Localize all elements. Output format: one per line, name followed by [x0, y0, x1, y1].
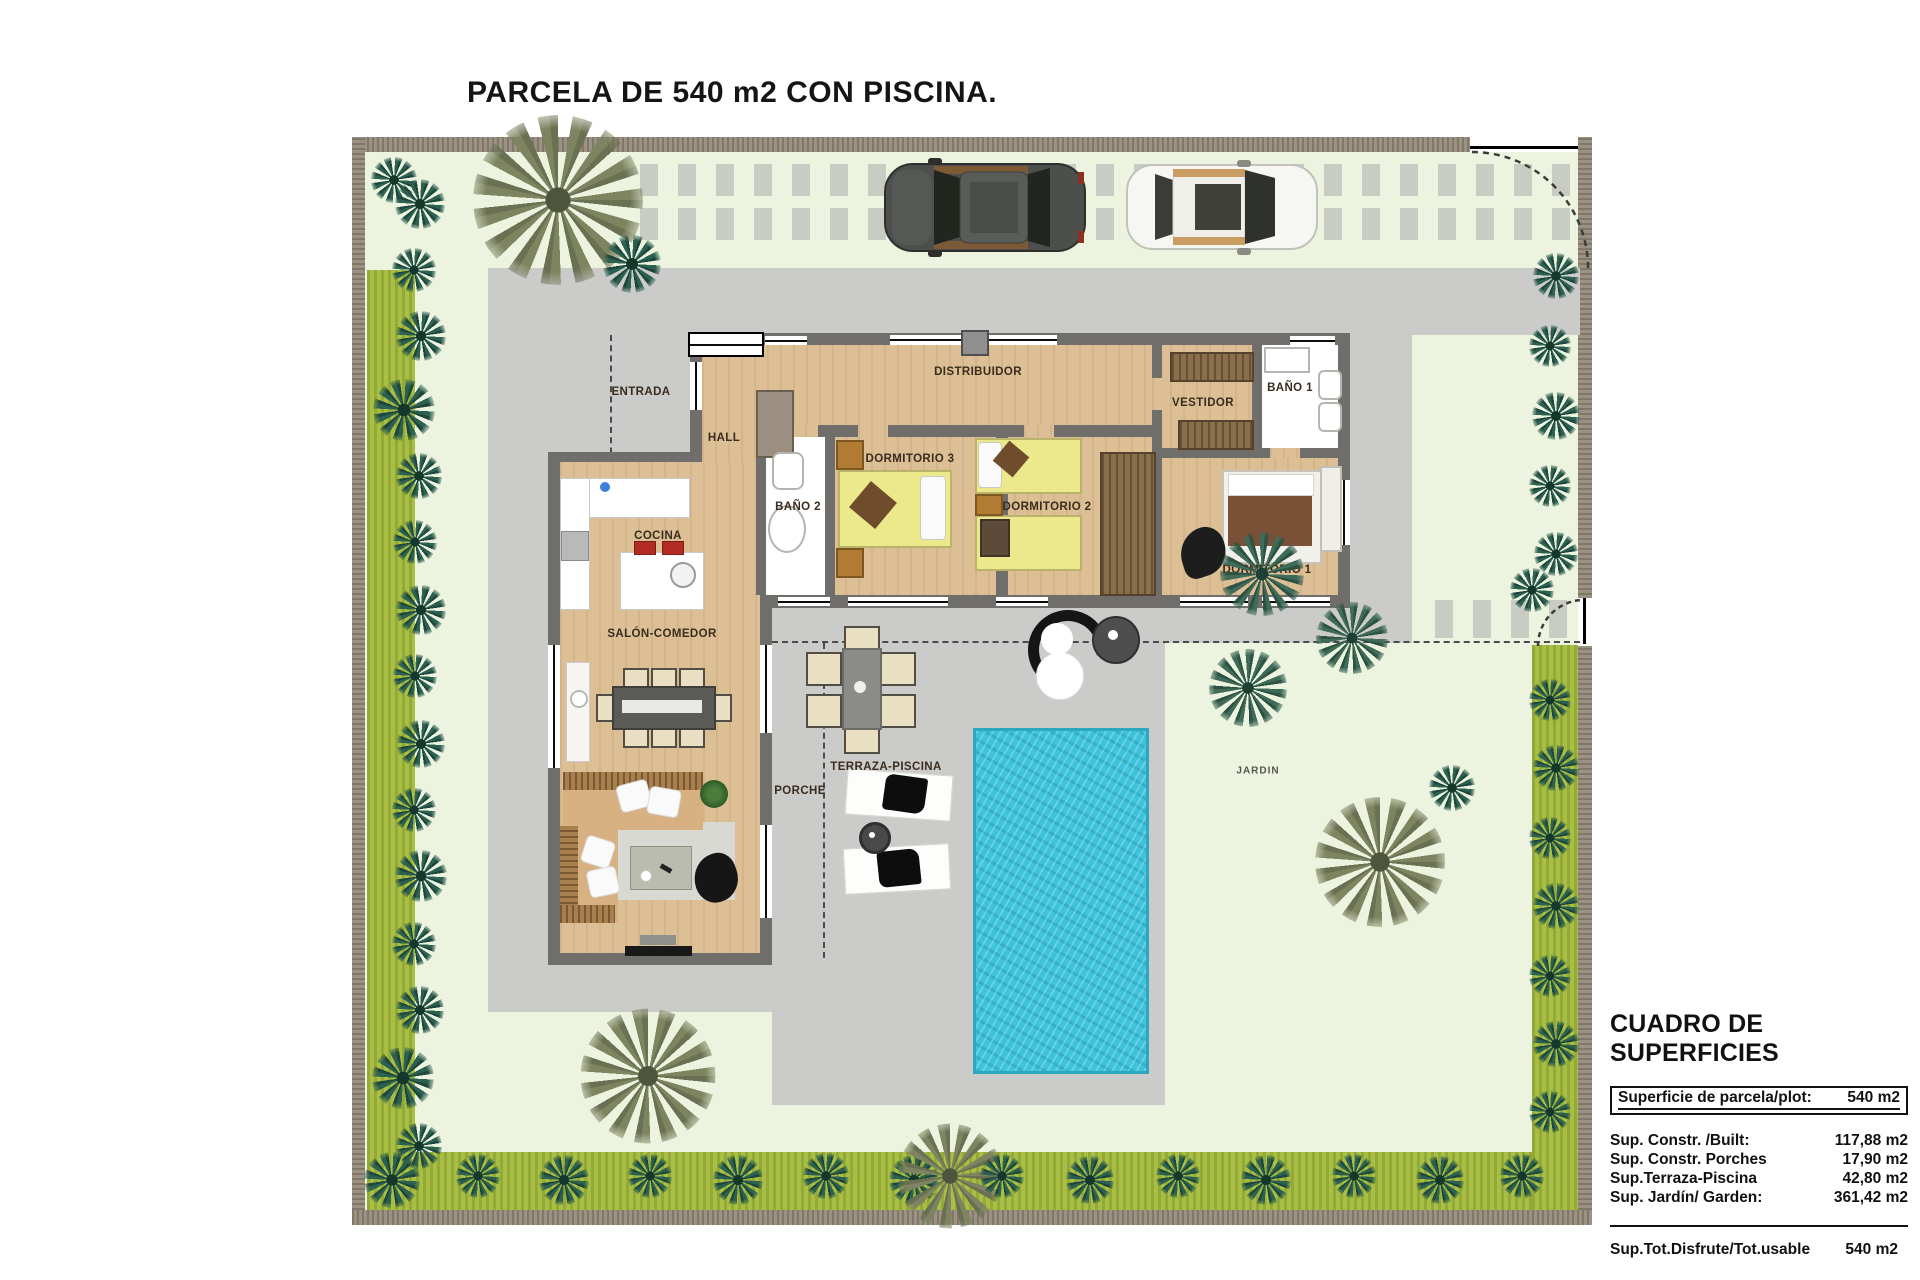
surface-row-value: 361,42 m2	[1834, 1188, 1908, 1207]
bush-icon	[1529, 679, 1571, 721]
room-label-vestidor: VESTIDOR	[1172, 397, 1234, 409]
room-label-dormitorio2: DORMITORIO 2	[1003, 501, 1092, 513]
bush-icon	[396, 453, 442, 499]
bush-icon	[980, 1154, 1024, 1198]
plot-surface-label: Superficie de parcela/plot:	[1618, 1089, 1812, 1107]
room-label-salon-comedor: SALÓN-COMEDOR	[607, 628, 716, 640]
bush-icon	[1156, 1154, 1200, 1198]
bush-icon	[1529, 325, 1571, 367]
bush-icon	[539, 1155, 589, 1205]
surface-row: Sup. Constr. Porches 17,90 m2	[1610, 1150, 1908, 1169]
bush-icon	[373, 379, 435, 441]
bush-icon	[1529, 817, 1571, 859]
bush-icon	[396, 311, 446, 361]
bush-icon	[803, 1153, 849, 1199]
surface-row: Sup.Terraza-Piscina 42,80 m2	[1610, 1169, 1908, 1188]
bush-icon	[1529, 1091, 1571, 1133]
bush-icon	[1532, 392, 1580, 440]
bush-icon	[1416, 1156, 1464, 1204]
bush-icon	[396, 986, 444, 1034]
room-label-bano1: BAÑO 1	[1267, 382, 1313, 394]
bush-icon	[396, 585, 446, 635]
total-row: Sup.Tot.Disfrute/Tot.usable 540 m2	[1610, 1241, 1908, 1259]
room-label-hall: HALL	[708, 432, 740, 444]
bush-icon	[1533, 745, 1579, 791]
bush-icon	[1533, 253, 1579, 299]
palm-icon	[1209, 649, 1287, 727]
bush-icon	[456, 1154, 500, 1198]
bush-icon	[1241, 1155, 1291, 1205]
palm-icon	[1220, 532, 1304, 616]
bush-icon	[628, 1154, 672, 1198]
summary-divider	[1610, 1225, 1908, 1227]
bush-icon	[1529, 465, 1571, 507]
palm-icon	[581, 1009, 716, 1144]
surface-row-value: 17,90 m2	[1843, 1150, 1909, 1169]
room-label-cocina: COCINA	[634, 530, 682, 542]
bush-icon	[1529, 955, 1571, 997]
bush-icon	[1429, 765, 1475, 811]
bush-icon	[603, 235, 661, 293]
surface-row-value: 117,88 m2	[1835, 1131, 1908, 1150]
floor-plan-canvas: PARCELA DE 540 m2 CON PISCINA.	[0, 0, 1920, 1280]
plot-surface-value: 540 m2	[1847, 1089, 1900, 1107]
room-label-distribuidor: DISTRIBUIDOR	[934, 366, 1022, 378]
surface-row: Sup. Jardín/ Garden: 361,42 m2	[1610, 1188, 1908, 1207]
surface-summary: CUADRO DE SUPERFICIES Superficie de parc…	[1610, 1010, 1908, 1259]
room-label-bano2: BAÑO 2	[775, 501, 821, 513]
page-title: PARCELA DE 540 m2 CON PISCINA.	[467, 76, 997, 110]
car-white-top-view	[1125, 160, 1319, 255]
bush-icon	[397, 720, 445, 768]
total-label: Sup.Tot.Disfrute/Tot.usable	[1610, 1241, 1810, 1259]
room-label-porche: PORCHE	[774, 785, 826, 797]
room-label-entrada: ENTRADA	[611, 386, 670, 398]
bush-icon	[1332, 1154, 1376, 1198]
room-label-jardin: JARDIN	[1236, 766, 1279, 777]
driveway-gate-arc	[1472, 152, 1588, 268]
surface-row: Sup. Constr. /Built: 117,88 m2	[1610, 1131, 1908, 1150]
palm-icon	[1316, 602, 1388, 674]
surface-row-label: Sup. Jardín/ Garden:	[1610, 1188, 1762, 1207]
bush-icon	[393, 654, 437, 698]
bush-icon	[392, 922, 436, 966]
bush-icon	[1510, 568, 1554, 612]
bush-icon	[372, 1047, 434, 1109]
surface-row-label: Sup. Constr. Porches	[1610, 1150, 1767, 1169]
total-value: 540 m2	[1845, 1241, 1898, 1259]
surface-rows: Sup. Constr. /Built: 117,88 m2 Sup. Cons…	[1610, 1131, 1908, 1207]
summary-heading: CUADRO DE SUPERFICIES	[1610, 1010, 1908, 1068]
bush-icon	[1500, 1154, 1544, 1198]
palm-icon	[1315, 797, 1445, 927]
bush-icon	[1066, 1156, 1114, 1204]
room-label-terraza-piscina: TERRAZA-PISCINA	[830, 761, 941, 773]
bush-icon	[364, 1152, 420, 1208]
car-dark-top-view	[882, 158, 1088, 257]
bush-icon	[1533, 883, 1579, 929]
plot-surface-box: Superficie de parcela/plot: 540 m2	[1610, 1086, 1908, 1115]
bush-icon	[395, 179, 445, 229]
bush-icon	[1533, 1021, 1579, 1067]
surface-row-label: Sup. Constr. /Built:	[1610, 1131, 1750, 1150]
surface-row-value: 42,80 m2	[1843, 1169, 1909, 1188]
bush-icon	[713, 1155, 763, 1205]
surface-row-label: Sup.Terraza-Piscina	[1610, 1169, 1757, 1188]
bush-icon	[392, 788, 436, 832]
bush-icon	[392, 248, 436, 292]
bush-icon	[393, 520, 437, 564]
room-label-dormitorio3: DORMITORIO 3	[866, 453, 955, 465]
bush-icon	[395, 850, 447, 902]
